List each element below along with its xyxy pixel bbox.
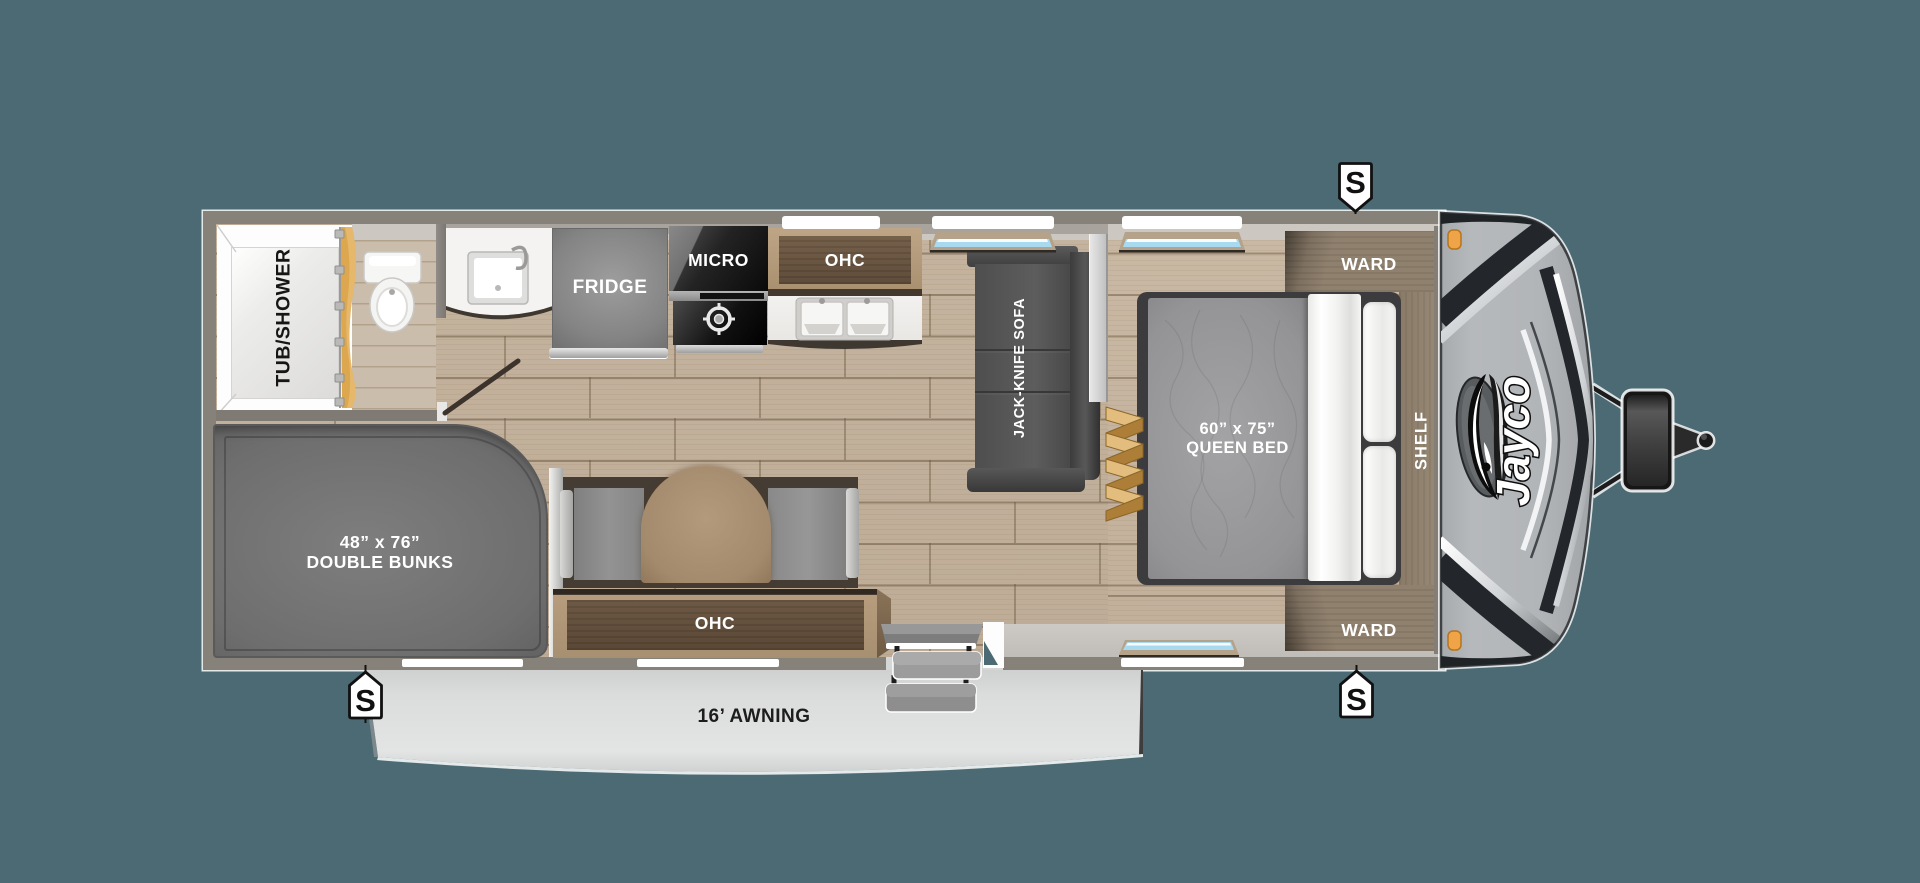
svg-text:Jayco: Jayco — [1487, 376, 1539, 506]
